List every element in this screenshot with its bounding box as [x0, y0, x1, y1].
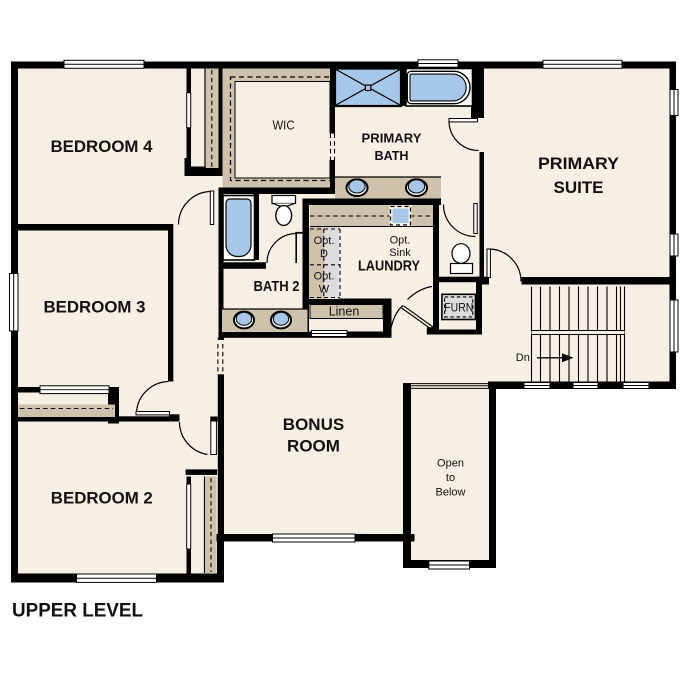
svg-text:Open: Open	[437, 458, 464, 470]
svg-text:BATH 2: BATH 2	[254, 279, 300, 295]
svg-text:Opt.: Opt.	[390, 235, 411, 247]
svg-text:W: W	[319, 284, 330, 296]
svg-text:UPPER LEVEL: UPPER LEVEL	[12, 601, 143, 622]
svg-text:PRIMARY: PRIMARY	[362, 132, 423, 146]
svg-text:BEDROOM 4: BEDROOM 4	[51, 137, 154, 156]
svg-text:PRIMARY: PRIMARY	[538, 154, 620, 173]
svg-text:LAUNDRY: LAUNDRY	[358, 259, 420, 275]
svg-text:Dn: Dn	[516, 352, 530, 364]
svg-text:SUITE: SUITE	[554, 178, 604, 197]
svg-text:Opt.: Opt.	[314, 271, 335, 283]
svg-text:Below: Below	[436, 487, 466, 499]
svg-text:Opt.: Opt.	[314, 235, 335, 247]
svg-text:to: to	[446, 472, 455, 484]
svg-text:Sink: Sink	[389, 247, 411, 259]
svg-text:Linen: Linen	[329, 305, 360, 319]
svg-text:BONUS: BONUS	[283, 415, 344, 434]
svg-text:BATH: BATH	[375, 149, 409, 163]
svg-text:FURN: FURN	[444, 300, 473, 314]
svg-text:BEDROOM 2: BEDROOM 2	[51, 489, 153, 508]
svg-text:D: D	[320, 248, 328, 260]
svg-text:BEDROOM 3: BEDROOM 3	[44, 298, 146, 317]
svg-text:ROOM: ROOM	[287, 437, 340, 456]
svg-text:WIC: WIC	[273, 119, 295, 133]
